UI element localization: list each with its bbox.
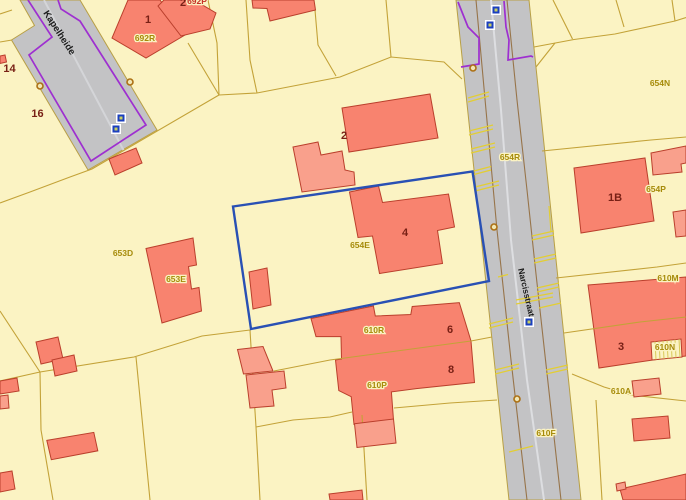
svg-text:4: 4: [402, 227, 409, 239]
svg-text:610P: 610P: [367, 380, 387, 390]
svg-text:14: 14: [3, 63, 16, 75]
svg-text:692P: 692P: [187, 0, 207, 6]
svg-text:654E: 654E: [350, 240, 370, 250]
svg-text:8: 8: [448, 364, 454, 376]
svg-text:610M: 610M: [657, 273, 678, 283]
svg-text:3: 3: [618, 341, 624, 353]
svg-text:2: 2: [341, 130, 347, 142]
svg-text:16: 16: [31, 108, 43, 120]
svg-text:654N: 654N: [650, 78, 670, 88]
svg-text:610F: 610F: [536, 428, 555, 438]
svg-text:610N: 610N: [655, 342, 675, 352]
svg-text:653E: 653E: [166, 274, 186, 284]
svg-text:610R: 610R: [364, 325, 384, 335]
svg-text:1B: 1B: [608, 192, 622, 204]
svg-text:692R: 692R: [135, 33, 155, 43]
svg-text:654R: 654R: [500, 152, 520, 162]
svg-text:2: 2: [180, 0, 186, 9]
svg-text:1: 1: [145, 14, 151, 26]
svg-text:6: 6: [447, 324, 453, 336]
svg-text:654P: 654P: [646, 184, 666, 194]
svg-text:653D: 653D: [113, 248, 133, 258]
svg-text:610A: 610A: [611, 386, 631, 396]
